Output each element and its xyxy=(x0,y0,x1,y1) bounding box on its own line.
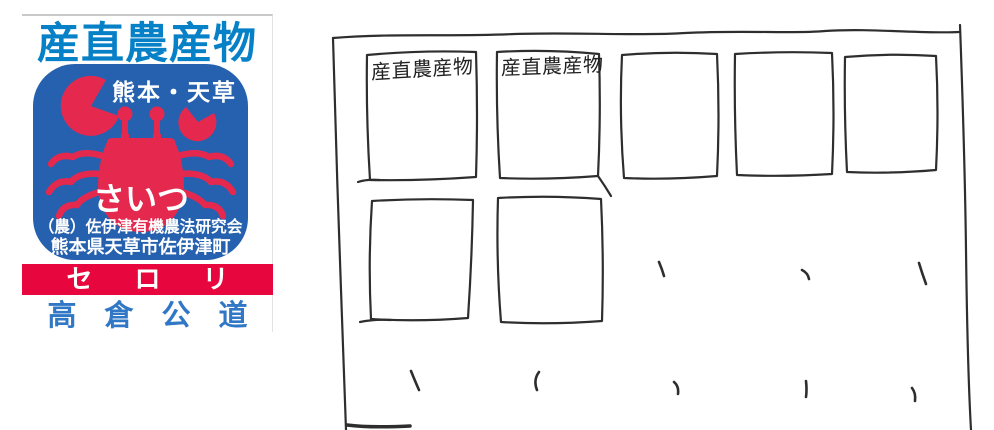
producer-name-text: 高倉公道 xyxy=(47,301,275,330)
produce-label: 産直農産物 熊本・天草 xyxy=(22,14,273,332)
org-address: 熊本県天草市佐伊津町 xyxy=(33,237,248,258)
org-name: （農）佐伊津有機農法研究会 xyxy=(35,217,246,237)
tick-mark xyxy=(535,372,539,390)
tick-mark xyxy=(411,371,419,390)
sheet-outline-left xyxy=(333,38,346,430)
crab-leg xyxy=(178,153,231,164)
tick-mark xyxy=(674,382,678,394)
crab-eye xyxy=(118,107,133,122)
producer-name: 高倉公道 xyxy=(22,301,273,330)
sketch-cell-tail xyxy=(598,176,611,196)
tick-marks-group xyxy=(411,262,926,401)
tick-mark xyxy=(919,263,926,284)
sketch-cell-tail xyxy=(358,180,380,182)
label-emblem-panel: 熊本・天草 xyxy=(33,64,248,260)
sketch-cell-tail xyxy=(360,320,391,322)
org-lines: （農）佐伊津有機農法研究会 熊本県天草市佐伊津町 xyxy=(33,217,248,258)
sheet-outline-bottom-stub xyxy=(347,425,410,427)
sketch-cell xyxy=(621,53,719,179)
sheet-outline-right xyxy=(960,25,971,430)
crab-eye xyxy=(150,107,165,122)
product-name: セロリ xyxy=(66,267,270,293)
crab-leg xyxy=(51,153,103,164)
sheet-outline-top xyxy=(333,30,959,38)
scanned-page: 産直農産物 熊本・天草 xyxy=(0,0,994,430)
mascot-name: さいつ xyxy=(93,180,189,218)
tick-mark xyxy=(912,388,915,401)
sketch-cell xyxy=(735,52,834,176)
sketch-cell xyxy=(845,55,938,173)
sketch-cell xyxy=(497,197,602,324)
hand-drawn-sketch: 産直農産物 産直農産物 xyxy=(325,0,994,430)
label-heading: 産直農産物 xyxy=(22,23,272,66)
crab-right-claw-icon xyxy=(178,107,216,141)
handwritten-cell-label: 産直農産物 xyxy=(501,54,603,78)
tick-mark xyxy=(802,270,809,279)
sketch-cell xyxy=(370,199,473,320)
crab-left-claw-icon xyxy=(61,76,119,136)
tick-mark xyxy=(659,262,664,276)
tick-mark xyxy=(806,381,807,397)
product-banner: セロリ xyxy=(22,264,273,295)
handwritten-cell-label: 産直農産物 xyxy=(371,56,474,82)
region-text: 熊本・天草 xyxy=(112,73,237,107)
